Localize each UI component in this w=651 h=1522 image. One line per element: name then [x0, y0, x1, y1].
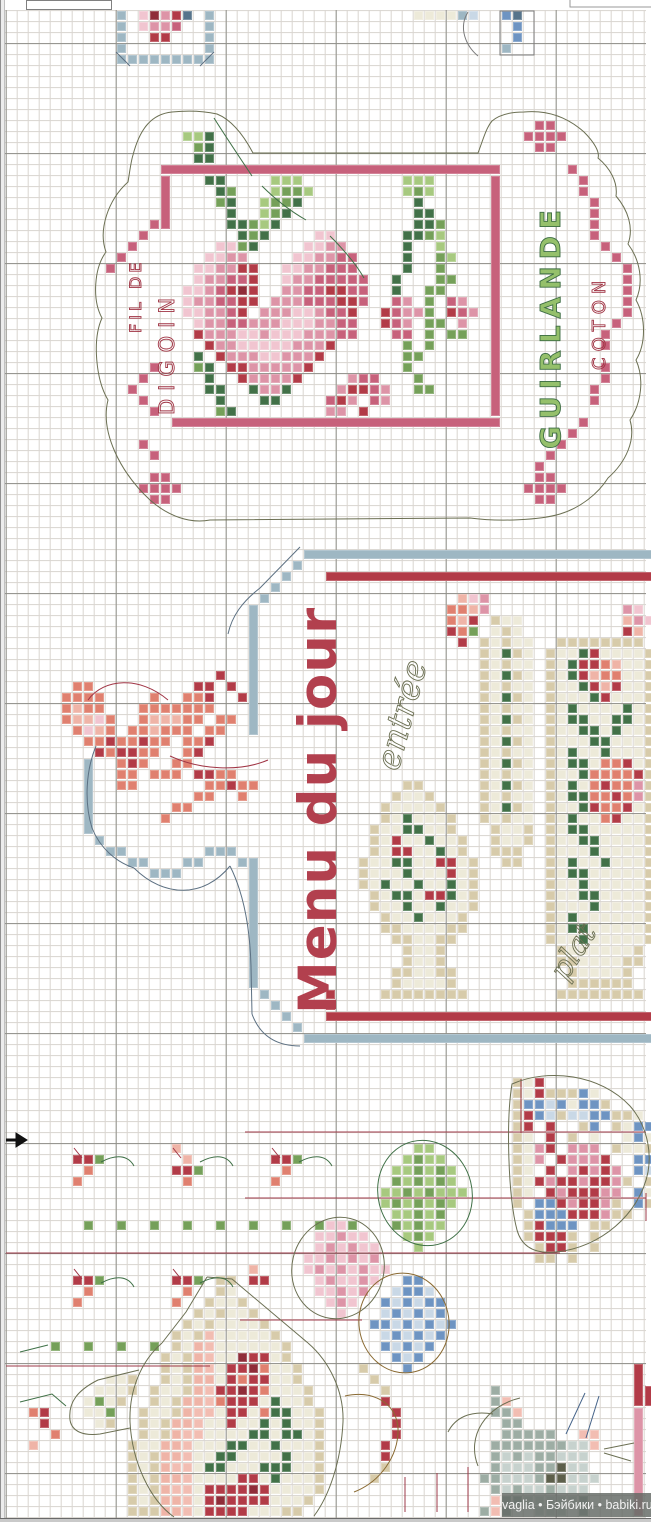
stitch-cells-layer [0, 0, 651, 1522]
watermark-text: vaglia • Бэйбики • babiki.ru [502, 1498, 651, 1512]
watermark: vaglia • Бэйбики • babiki.ru [502, 1493, 651, 1517]
bottom-scrollbar[interactable] [0, 1518, 651, 1522]
left-scrollbar[interactable] [0, 0, 5, 1522]
toolbar-input[interactable] [26, 0, 112, 10]
pattern-viewer-window: FIL DEDIGOINGUIRLANDECOTONMenu du jouren… [0, 0, 651, 1522]
